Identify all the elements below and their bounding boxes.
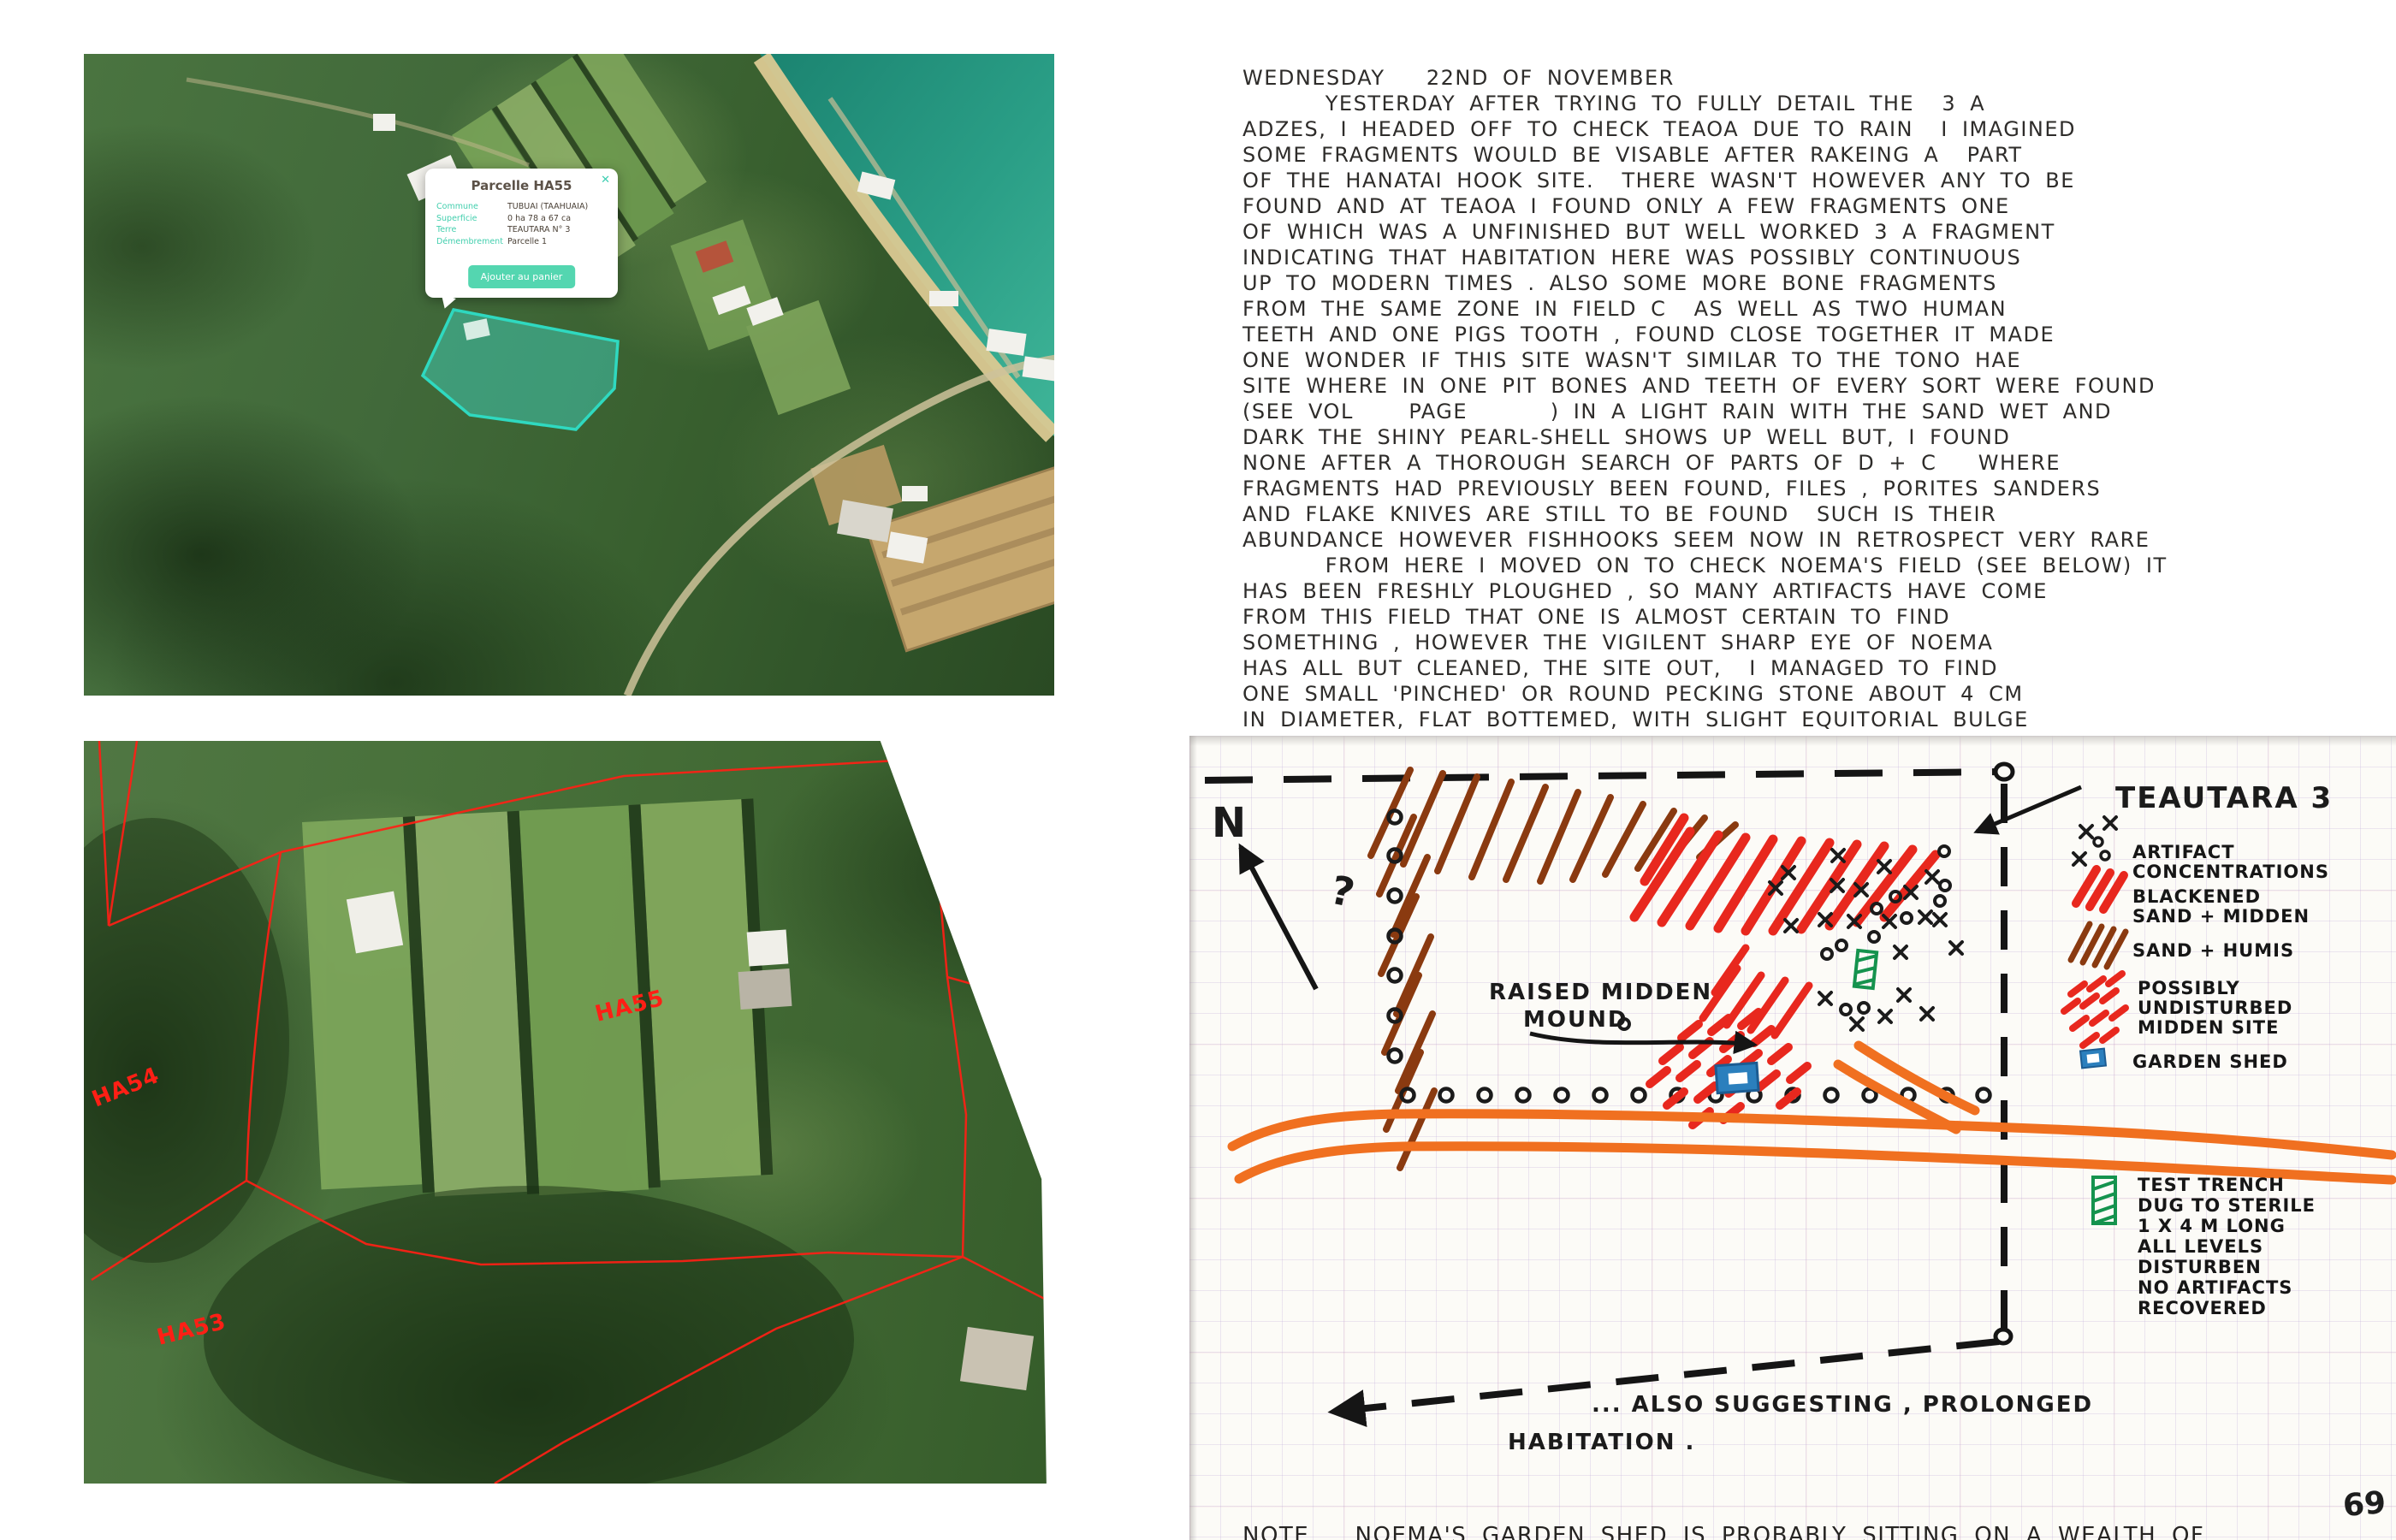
selected-parcel-ha55[interactable] — [423, 310, 618, 429]
journal-line: FROM HERE I MOVED ON TO CHECK NOEMA'S FI… — [1242, 553, 2393, 578]
journal-line: ABUNDANCE HOWEVER FISHHOOKS SEEM NOW IN … — [1242, 527, 2393, 553]
legend-test-trench-symbol — [2093, 1177, 2115, 1223]
aerial-photo-cadastre[interactable]: HA54 HA55 HA53 — [84, 741, 1061, 1484]
aerial-photo-top-overlay — [84, 54, 1054, 696]
forest-blob — [204, 1186, 854, 1484]
test-trench-symbol — [1854, 951, 1877, 988]
popup-title: Parcelle HA55 — [425, 178, 618, 193]
svg-text:MIDDEN SITE: MIDDEN SITE — [2138, 1017, 2279, 1038]
journal-line: SITE WHERE IN ONE PIT BONES AND TEETH OF… — [1242, 373, 2393, 399]
svg-text:MOUND: MOUND — [1523, 1007, 1628, 1033]
journal-line: HAS ALL BUT CLEANED, THE SITE OUT, I MAN… — [1242, 655, 2393, 681]
svg-text:DUG TO STERILE: DUG TO STERILE — [2138, 1195, 2316, 1216]
page-number: 69 — [2341, 1485, 2387, 1524]
legend-symbols — [2064, 817, 2126, 1045]
aerial-photo-map[interactable]: ✕ Parcelle HA55 Commune TUBUAI (TAAHUAIA… — [84, 54, 1054, 696]
svg-text:N: N — [1212, 799, 1248, 847]
svg-text:... ALSO SUGGESTING , PROLON: ... ALSO SUGGESTING , PROLONGED — [1592, 1392, 2093, 1418]
aerial-photo-bottom-overlay: HA54 HA55 HA53 — [84, 741, 1061, 1484]
journal-line: ONE SMALL 'PINCHED' OR ROUND PECKING STO… — [1242, 681, 2393, 707]
legend-garden-shed-symbol — [2080, 1049, 2106, 1069]
journal-line: FROM THIS FIELD THAT ONE IS ALMOST CERTA… — [1242, 604, 2393, 630]
popup-row-terre: Terre TEAUTARA N° 3 — [436, 224, 618, 236]
svg-text:SAND + HUMIS: SAND + HUMIS — [2132, 940, 2294, 961]
svg-text:CONCENTRATIONS: CONCENTRATIONS — [2132, 862, 2329, 882]
journal-line: OF WHICH WAS A UNFINISHED BUT WELL WORKE… — [1242, 219, 2393, 245]
journal-line: FROM THE SAME ZONE IN FIELD C AS WELL AS… — [1242, 296, 2393, 322]
note-line-1: NOTE NOEMA'S GARDEN SHED IS PROBABLY SIT… — [1242, 1523, 2204, 1540]
svg-text:UNDISTURBED: UNDISTURBED — [2138, 998, 2292, 1018]
svg-text:HABITATION .: HABITATION . — [1508, 1430, 1695, 1455]
field-strips — [302, 798, 774, 1206]
journal-lines: WEDNESDAY 22ND OF NOVEMBER YESTERDAY AFT… — [1242, 65, 2393, 784]
svg-text:RECOVERED: RECOVERED — [2138, 1298, 2267, 1318]
svg-text:SAND + MIDDEN: SAND + MIDDEN — [2132, 906, 2310, 927]
journal-line: SOMETHING , HOWEVER THE VIGILENT SHARP E… — [1242, 630, 2393, 655]
journal-line: UP TO MODERN TIMES . ALSO SOME MORE BONE… — [1242, 270, 2393, 296]
journal-line: FRAGMENTS HAD PREVIOUSLY BEEN FOUND, FIL… — [1242, 476, 2393, 501]
svg-text:ARTIFACT: ARTIFACT — [2132, 842, 2235, 862]
journal-page: ✕ Parcelle HA55 Commune TUBUAI (TAAHUAIA… — [0, 0, 2396, 1540]
svg-text:ALL LEVELS: ALL LEVELS — [2138, 1236, 2263, 1257]
journal-line: DARK THE SHINY PEARL-SHELL SHOWS UP WELL… — [1242, 424, 2393, 450]
map-legend: ARTIFACT CONCENTRATIONS BLACKENED SAND +… — [2064, 817, 2329, 1318]
garden-shed-symbol — [1716, 1063, 1758, 1093]
journal-text: WEDNESDAY 22ND OF NOVEMBER YESTERDAY AFT… — [1242, 14, 2393, 835]
journal-line: HAS BEEN FRESHLY PLOUGHED , SO MANY ARTI… — [1242, 578, 2393, 604]
journal-line: IN DIAMETER, FLAT BOTTEMED, WITH SLIGHT … — [1242, 707, 2393, 732]
close-icon[interactable]: ✕ — [601, 175, 610, 186]
popup-row-demembrement: Démembrement Parcelle 1 — [436, 236, 618, 248]
add-to-cart-button[interactable]: Ajouter au panier — [468, 265, 576, 288]
journal-line: ADZES, I HEADED OFF TO CHECK TEAOA DUE T… — [1242, 116, 2393, 142]
svg-text:NO ARTIFACTS: NO ARTIFACTS — [2138, 1277, 2292, 1298]
journal-line: INDICATING THAT HABITATION HERE WAS POSS… — [1242, 245, 2393, 270]
question-mark: ? — [1326, 867, 1360, 917]
journal-line: TEETH AND ONE PIGS TOOTH , FOUND CLOSE T… — [1242, 322, 2393, 347]
svg-text:GARDEN SHED: GARDEN SHED — [2132, 1051, 2288, 1072]
journal-line: SOME FRAGMENTS WOULD BE VISABLE AFTER RA… — [1242, 142, 2393, 168]
bottom-note: NOTE NOEMA'S GARDEN SHED IS PROBABLY SIT… — [1242, 1472, 2204, 1540]
svg-text:1 X 4 M LONG: 1 X 4 M LONG — [2138, 1216, 2286, 1236]
journal-line: FOUND AND AT TEAOA I FOUND ONLY A FEW FR… — [1242, 193, 2393, 219]
journal-line: NONE AFTER A THOROUGH SEARCH OF PARTS OF… — [1242, 450, 2393, 476]
datum-circle-bottom — [1996, 1330, 2011, 1343]
svg-text:TEST TRENCH: TEST TRENCH — [2138, 1175, 2285, 1195]
svg-text:POSSIBLY: POSSIBLY — [2138, 978, 2240, 998]
svg-text:DISTURBEN: DISTURBEN — [2138, 1257, 2262, 1277]
popup-row-superficie: Superficie 0 ha 78 a 67 ca — [436, 213, 618, 225]
popup-rows: Commune TUBUAI (TAAHUAIA) Superficie 0 h… — [436, 201, 618, 247]
journal-line: YESTERDAY AFTER TRYING TO FULLY DETAIL T… — [1242, 91, 2393, 116]
journal-line: OF THE HANATAI HOOK SITE. THERE WASN'T H… — [1242, 168, 2393, 193]
popup-row-commune: Commune TUBUAI (TAAHUAIA) — [436, 201, 618, 213]
journal-line: WEDNESDAY 22ND OF NOVEMBER — [1242, 65, 2393, 91]
journal-line: AND FLAKE KNIVES ARE STILL TO BE FOUND S… — [1242, 501, 2393, 527]
site-sketch-map: N ? — [1189, 736, 2396, 1540]
journal-line: ONE WONDER IF THIS SITE WASN'T SIMILAR T… — [1242, 347, 2393, 373]
svg-text:BLACKENED: BLACKENED — [2132, 886, 2261, 907]
map-title: TEAUTARA 3 — [1977, 781, 2333, 832]
journal-line: (SEE VOL PAGE ) IN A LIGHT RAIN WITH THE… — [1242, 399, 2393, 424]
north-arrow-icon: N — [1212, 799, 1316, 989]
parcel-popup: ✕ Parcelle HA55 Commune TUBUAI (TAAHUAIA… — [425, 169, 618, 298]
sketch-map-svg: N ? — [1189, 736, 2396, 1540]
svg-text:TEAUTARA 3: TEAUTARA 3 — [2115, 781, 2333, 815]
svg-text:RAISED MIDDEN: RAISED MIDDEN — [1489, 980, 1712, 1005]
suggesting-note: ... ALSO SUGGESTING , PROLONGED HABITATI… — [1508, 1392, 2093, 1455]
datum-circle-top — [1996, 764, 2013, 779]
